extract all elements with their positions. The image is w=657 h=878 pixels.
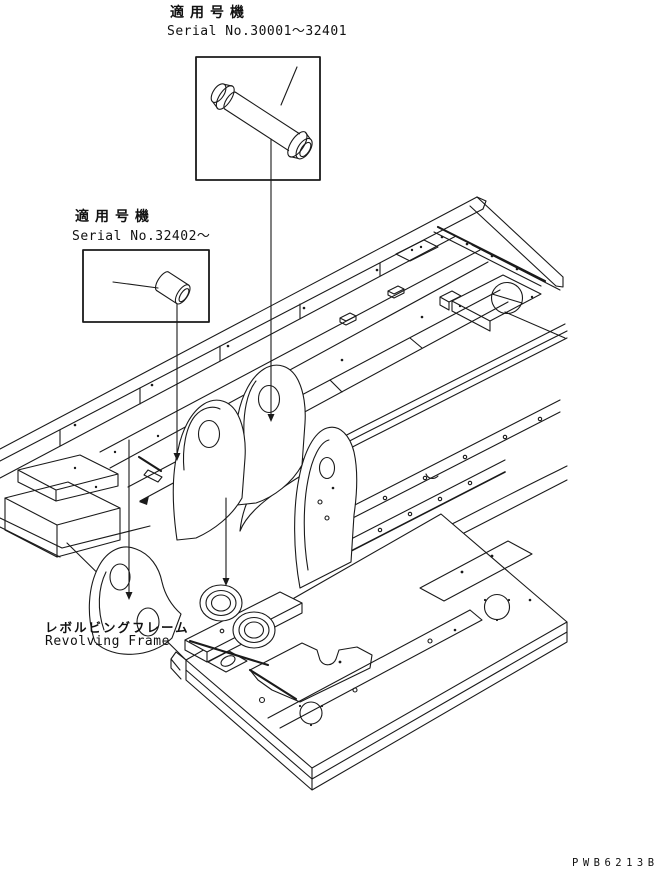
pin-callout-box bbox=[196, 57, 320, 422]
pin-applicability-label: 適用号機 bbox=[170, 2, 250, 22]
drawing-number: PWB6213B bbox=[572, 857, 657, 869]
bushing-applicability-label: 適用号機 bbox=[75, 206, 155, 226]
pin-inner-leader-line bbox=[281, 67, 297, 105]
pin-serial-range-label: Serial No.30001～32401 bbox=[167, 20, 347, 39]
bushing-serial-range-label: Serial No.32402～ bbox=[72, 225, 210, 244]
frame-bottom-plate bbox=[171, 514, 567, 790]
parts-diagram-page: 適用号機 Serial No.30001～32401 適用号機 Serial N… bbox=[0, 0, 657, 878]
bushing-illustration bbox=[153, 270, 193, 307]
bushing-inner-leader-line bbox=[113, 282, 158, 288]
pin-illustration bbox=[206, 78, 317, 164]
revolving-frame-drawing bbox=[0, 0, 657, 878]
frame-label-english: Revolving Frame bbox=[45, 634, 170, 649]
